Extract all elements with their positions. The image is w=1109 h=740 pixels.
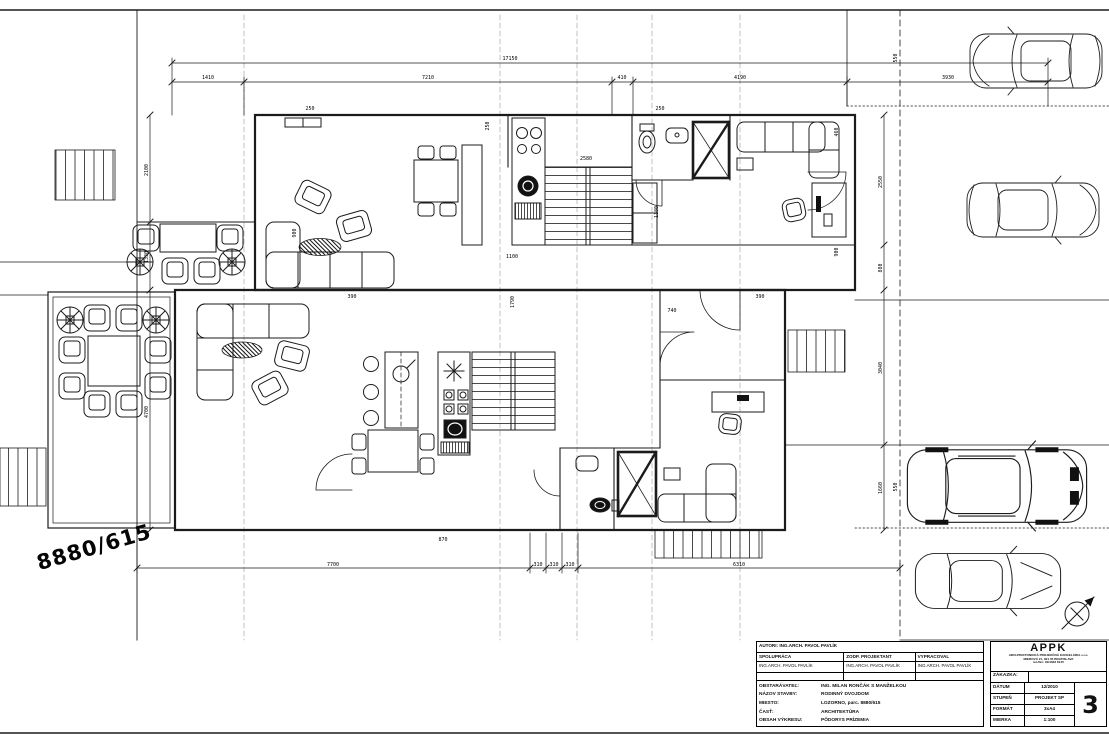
svg-text:1100: 1100 [506, 254, 518, 260]
dining-table [368, 430, 418, 472]
washbasin [576, 456, 598, 471]
sofa [737, 122, 825, 152]
parking-cars [907, 27, 1102, 616]
field-label: STUPEŇ [991, 694, 1025, 704]
svg-text:250: 250 [485, 121, 491, 130]
exterior-steps [0, 150, 845, 558]
authors-row: AUTORI: ING.ARCH. PAVOL PAVLÍK [757, 642, 983, 652]
row-value: PÔDORYS PRÍZEMIA [821, 718, 981, 723]
patio-table [88, 336, 140, 386]
svg-text:2100: 2100 [144, 164, 150, 176]
svg-text:4700: 4700 [144, 406, 150, 418]
col-header-2: ZODP. PROJEKTANT [844, 653, 915, 661]
armchair [293, 178, 333, 215]
svg-text:870: 870 [438, 537, 447, 543]
svg-text:390: 390 [755, 294, 764, 300]
svg-text:390: 390 [347, 294, 356, 300]
svg-text:6310: 6310 [733, 562, 745, 568]
svg-text:460: 460 [834, 127, 840, 136]
drawing-number: 3 [1075, 683, 1106, 726]
north-arrow-icon [1062, 597, 1094, 629]
title-block-meta: APPK ARCHITEKTONICKÁ PROJEKČNÁ KANCELÁRI… [990, 641, 1107, 727]
svg-text:4190: 4190 [734, 75, 746, 81]
patio-table [160, 224, 216, 252]
svg-text:310: 310 [533, 562, 542, 568]
dining-table [414, 160, 458, 202]
svg-text:740: 740 [667, 308, 676, 314]
stairs-upper-unit [545, 167, 632, 245]
svg-text:250: 250 [655, 106, 664, 112]
car-top-view-2 [967, 176, 1099, 244]
svg-text:17150: 17150 [502, 56, 517, 62]
col-name-2: ING.ARCH. PAVOL PAVLÍK [844, 662, 915, 672]
svg-text:1790: 1790 [510, 296, 516, 308]
svg-text:1660: 1660 [878, 482, 884, 494]
field-value: 3xA4 [1025, 705, 1074, 715]
row-label: ČASŤ: [759, 710, 821, 715]
dimension-labels: 1715014107210410419039307700310310310631… [144, 53, 954, 568]
title-block: AUTORI: ING.ARCH. PAVOL PAVLÍK SPOLUPRÁC… [756, 641, 1107, 727]
svg-text:250: 250 [305, 106, 314, 112]
field-label: ZÁKAZKA: [991, 672, 1029, 682]
kitchen-island [462, 145, 482, 245]
svg-text:1180: 1180 [654, 206, 660, 218]
car-top-view-suv [907, 441, 1086, 531]
svg-text:7210: 7210 [422, 75, 434, 81]
building-walls [175, 115, 855, 530]
col-header-3: VYPRACOVAL [916, 653, 983, 661]
svg-text:1410: 1410 [202, 75, 214, 81]
row-label: OBSAH VÝKRESU: [759, 718, 821, 723]
bar-counter [385, 352, 418, 428]
project-info: OBSTARÁVATEĽ:ING. MILAN RONČÁK S MANŽELK… [757, 681, 983, 726]
svg-text:3040: 3040 [878, 362, 884, 374]
cooker-hood [444, 361, 464, 381]
sofa [658, 494, 736, 522]
rug [299, 239, 341, 256]
car-top-view-1 [970, 27, 1102, 95]
row-value: RODINNÝ DVOJDOM [821, 692, 981, 697]
monitor [737, 395, 749, 401]
row-value: ARCHITEKTÚRA [821, 710, 981, 715]
washbasin [666, 128, 688, 143]
office-chair [718, 413, 742, 435]
svg-text:2580: 2580 [580, 156, 592, 162]
terrace-lower [48, 292, 175, 528]
svg-text:900: 900 [292, 228, 298, 237]
field-label: DÁTUM [991, 683, 1025, 693]
bar-stool [364, 357, 379, 372]
row-value: ING. MILAN RONČÁK S MANŽELKOU [821, 684, 981, 689]
svg-text:550: 550 [893, 53, 899, 62]
field-label: FORMÁT [991, 705, 1025, 715]
svg-text:3930: 3930 [942, 75, 954, 81]
monitor [816, 196, 821, 212]
col-header-1: SPOLUPRÁCA [757, 653, 844, 661]
row-label: OBSTARÁVATEĽ: [759, 684, 821, 689]
svg-text:310: 310 [549, 562, 558, 568]
row-label: NÁZOV STAVBY: [759, 692, 821, 697]
interior-walls [137, 115, 855, 530]
rug [222, 342, 262, 358]
armchair [250, 369, 290, 407]
field-value: 12/2010 [1025, 683, 1074, 693]
car-top-view-4 [915, 546, 1060, 615]
floor-plan-canvas: 1715014107210410419039307700310310310631… [0, 0, 1109, 740]
svg-text:7700: 7700 [327, 562, 339, 568]
title-block-main: AUTORI: ING.ARCH. PAVOL PAVLÍK SPOLUPRÁC… [756, 641, 984, 727]
svg-text:1330: 1330 [144, 251, 150, 263]
svg-text:410: 410 [617, 75, 626, 81]
toilet [590, 498, 610, 512]
row-value: LOZORNO, parc. 8880/615 [821, 701, 981, 706]
field-label: MIERKA [991, 716, 1025, 726]
company-address-line: tel./fax: 02/4363 8145 [991, 661, 1106, 665]
row-label: MIESTO: [759, 701, 821, 706]
svg-text:2550: 2550 [878, 176, 884, 188]
bar-stool [364, 385, 379, 400]
svg-text:900: 900 [834, 247, 840, 256]
field-value: 1:100 [1025, 716, 1074, 726]
field-value [1029, 672, 1106, 682]
svg-text:310: 310 [565, 562, 574, 568]
office-chair [781, 197, 807, 223]
svg-text:880: 880 [878, 263, 884, 272]
stairs-lower-unit [472, 352, 555, 430]
dimension-lines [134, 58, 1051, 573]
toilet [639, 131, 655, 153]
field-value: PROJEKT SP [1025, 694, 1074, 704]
armchair [273, 340, 310, 373]
company-logo: APPK ARCHITEKTONICKÁ PROJEKČNÁ KANCELÁRI… [991, 642, 1106, 672]
bar-stool [364, 411, 379, 426]
svg-text:550: 550 [893, 482, 899, 491]
armchair [335, 209, 373, 243]
col-name-1: ING.ARCH. PAVOL PAVLÍK [757, 662, 844, 672]
kitchen-sink [518, 176, 538, 196]
col-name-3: ING.ARCH. PAVOL PAVLÍK [916, 662, 983, 672]
drawing-sheet: 1715014107210410419039307700310310310631… [0, 0, 1109, 740]
